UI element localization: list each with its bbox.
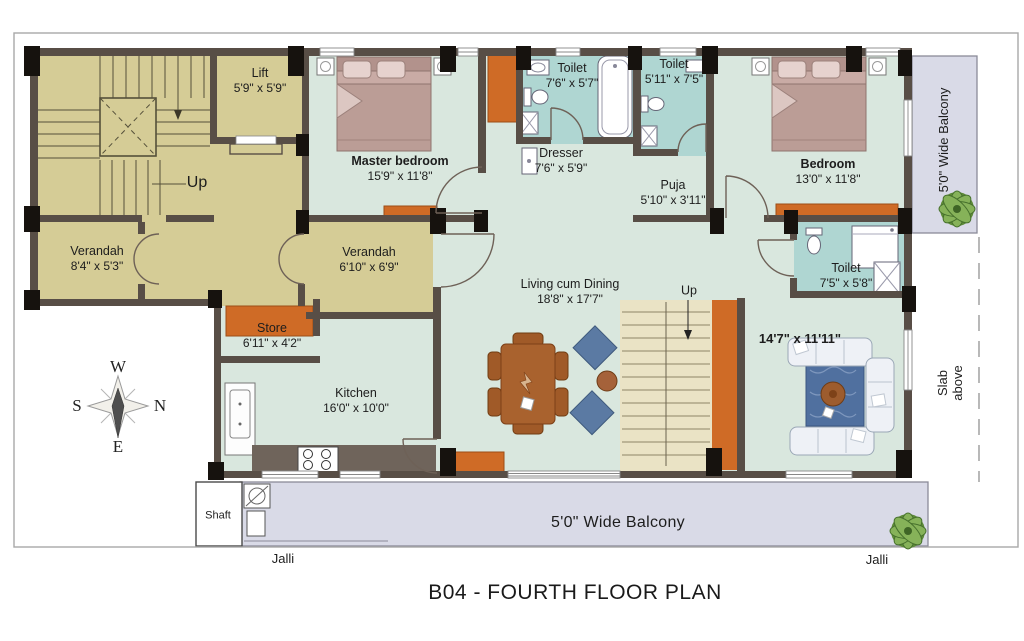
room-label-store: Store 6'11" x 4'2" <box>243 321 301 351</box>
room-label-lift: Lift 5'9" x 5'9" <box>234 66 286 96</box>
room-label-toilet-master: Toilet 7'6" x 5'7" <box>546 61 598 91</box>
room-label-family-room: 14'7" x 11'11" <box>759 331 841 347</box>
floor-plan-drawing <box>0 0 1024 641</box>
lift-door <box>230 144 282 154</box>
room-label-verandah-left: Verandah 8'4" x 5'3" <box>70 244 124 274</box>
slab-above-label: Slab above <box>936 356 966 410</box>
room-label-kitchen: Kitchen 16'0" x 10'0" <box>323 386 389 416</box>
jalli-right-label: Jalli <box>866 552 888 568</box>
floor-plan-page: Lift 5'9" x 5'9" Up Verandah 8'4" x 5'3"… <box>0 0 1024 641</box>
compass-north: N <box>154 396 166 416</box>
room-label-verandah-right: Verandah 6'10" x 6'9" <box>339 245 398 275</box>
balcony-bottom-label: 5'0" Wide Balcony <box>551 513 685 533</box>
room-label-master-bedroom: Master bedroom 15'9" x 11'8" <box>351 154 448 184</box>
room-label-toilet-bedroom: Toilet 7'5" x 5'8" <box>820 261 872 291</box>
shaft-label: Shaft <box>205 509 231 522</box>
jalli-left-label: Jalli <box>272 551 294 567</box>
room-label-toilet-common: Toilet 5'11" x 7'5" <box>645 57 703 87</box>
stairs-up-label: Up <box>187 173 207 193</box>
compass-rose <box>88 376 148 438</box>
balcony-right-label: 5'0" Wide Balcony <box>936 88 952 193</box>
room-label-dresser: Dresser 7'6" x 5'9" <box>535 146 587 176</box>
double-bed <box>317 57 451 151</box>
room-label-puja: Puja 5'10" x 3'11" <box>641 178 706 208</box>
page-title: B04 - FOURTH FLOOR PLAN <box>428 581 722 605</box>
compass-south: S <box>72 396 81 416</box>
inner-stairs-up-label: Up <box>681 283 697 298</box>
room-label-bedroom: Bedroom 13'0" x 11'8" <box>796 157 861 187</box>
compass-east: E <box>113 437 123 457</box>
compass-west: W <box>110 357 126 377</box>
room-label-living-dining: Living cum Dining 18'8" x 17'7" <box>521 277 620 307</box>
plant <box>939 191 975 227</box>
